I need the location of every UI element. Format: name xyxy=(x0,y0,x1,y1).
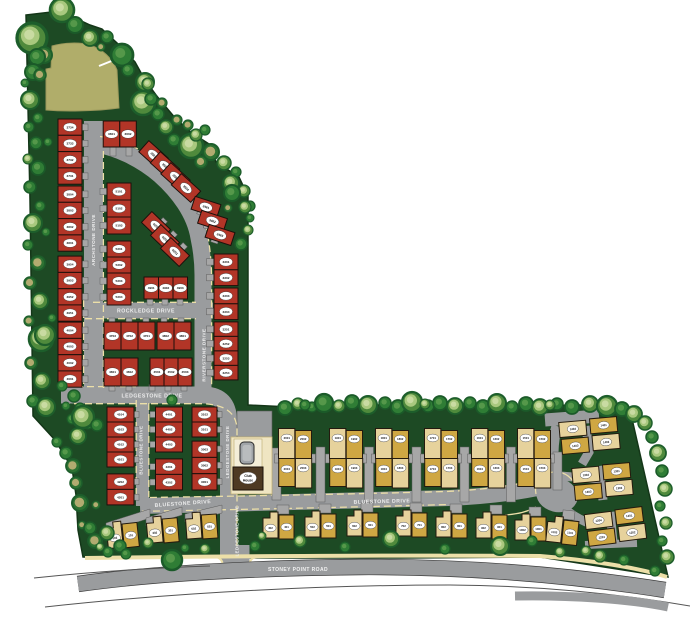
svg-text:3254: 3254 xyxy=(223,371,230,375)
svg-text:1302: 1302 xyxy=(616,486,623,491)
svg-text:1504: 1504 xyxy=(523,467,530,471)
svg-text:4802: 4802 xyxy=(162,334,169,338)
svg-text:5102: 5102 xyxy=(116,207,123,211)
svg-text:1701: 1701 xyxy=(430,436,437,440)
svg-text:3101: 3101 xyxy=(201,428,208,432)
svg-text:602: 602 xyxy=(352,524,357,528)
svg-text:1204: 1204 xyxy=(595,518,602,523)
svg-text:4703: 4703 xyxy=(109,334,116,338)
svg-text:1602: 1602 xyxy=(493,437,500,441)
svg-text:4101: 4101 xyxy=(117,458,124,462)
svg-text:1001: 1001 xyxy=(535,527,542,531)
svg-text:4701: 4701 xyxy=(143,334,150,338)
svg-text:3251: 3251 xyxy=(223,327,230,331)
svg-text:802: 802 xyxy=(441,525,446,529)
svg-text:1902: 1902 xyxy=(351,437,358,441)
svg-text:2004: 2004 xyxy=(284,467,291,471)
svg-text:3003: 3003 xyxy=(201,447,208,451)
svg-text:702: 702 xyxy=(401,524,406,528)
svg-text:4302: 4302 xyxy=(166,480,173,484)
svg-text:3802: 3802 xyxy=(67,225,74,229)
svg-text:4901: 4901 xyxy=(148,286,155,290)
svg-text:4301: 4301 xyxy=(166,465,173,469)
svg-text:402: 402 xyxy=(268,526,273,530)
svg-text:4903: 4903 xyxy=(177,286,184,290)
svg-text:3734: 3734 xyxy=(67,125,74,129)
svg-text:1503: 1503 xyxy=(539,466,546,470)
svg-text:3804: 3804 xyxy=(67,192,74,196)
svg-text:502: 502 xyxy=(191,526,196,530)
svg-text:4503: 4503 xyxy=(182,370,189,374)
svg-text:1703: 1703 xyxy=(446,466,453,470)
svg-text:701: 701 xyxy=(417,523,422,527)
svg-text:LEDGESTONE DRIVE: LEDGESTONE DRIVE xyxy=(225,426,230,479)
svg-text:5103: 5103 xyxy=(116,224,123,228)
svg-text:3253: 3253 xyxy=(223,356,230,360)
svg-text:1702: 1702 xyxy=(446,437,453,441)
svg-text:601: 601 xyxy=(368,523,373,527)
svg-text:3952: 3952 xyxy=(67,295,74,299)
svg-text:3002: 3002 xyxy=(201,464,208,468)
svg-text:1102: 1102 xyxy=(551,530,558,535)
svg-text:3602: 3602 xyxy=(125,132,132,136)
svg-text:1501: 1501 xyxy=(523,436,530,440)
svg-text:5301: 5301 xyxy=(116,247,123,251)
svg-text:501: 501 xyxy=(326,524,331,528)
svg-text:4102: 4102 xyxy=(117,443,124,447)
svg-text:101: 101 xyxy=(128,533,134,538)
svg-text:2003: 2003 xyxy=(300,466,307,470)
svg-text:1403: 1403 xyxy=(572,444,579,449)
svg-text:4801: 4801 xyxy=(179,334,186,338)
svg-text:4401: 4401 xyxy=(166,413,173,417)
svg-text:301: 301 xyxy=(168,528,174,532)
svg-text:801: 801 xyxy=(457,524,462,528)
svg-text:3951: 3951 xyxy=(67,311,74,315)
svg-text:4403: 4403 xyxy=(166,443,173,447)
svg-text:3733: 3733 xyxy=(67,142,74,146)
svg-text:3304: 3304 xyxy=(223,310,230,314)
svg-text:1203: 1203 xyxy=(598,535,605,540)
svg-text:4502: 4502 xyxy=(168,370,175,374)
svg-text:3102: 3102 xyxy=(201,413,208,417)
svg-text:1803: 1803 xyxy=(397,466,404,470)
svg-text:4001: 4001 xyxy=(67,377,74,381)
svg-text:4104: 4104 xyxy=(117,413,124,417)
svg-text:302: 302 xyxy=(152,531,158,535)
svg-text:4902: 4902 xyxy=(162,286,169,290)
svg-text:3801: 3801 xyxy=(67,241,74,245)
svg-text:1904: 1904 xyxy=(335,467,342,471)
svg-text:ROCKLEDGE DRIVE: ROCKLEDGE DRIVE xyxy=(117,309,175,315)
svg-text:901: 901 xyxy=(497,525,502,529)
svg-text:4202: 4202 xyxy=(117,480,124,484)
svg-text:3803: 3803 xyxy=(67,209,74,213)
svg-text:5303: 5303 xyxy=(116,279,123,283)
svg-text:3001: 3001 xyxy=(201,480,208,484)
svg-text:1704: 1704 xyxy=(430,467,437,471)
svg-text:ARCHSTONE DRIVE: ARCHSTONE DRIVE xyxy=(91,214,96,266)
svg-text:3303: 3303 xyxy=(223,294,230,298)
svg-text:3953: 3953 xyxy=(67,279,74,283)
svg-text:501: 501 xyxy=(207,524,212,528)
svg-text:1502: 1502 xyxy=(539,437,546,441)
svg-text:1304: 1304 xyxy=(582,473,589,478)
svg-text:1903: 1903 xyxy=(351,466,358,470)
svg-text:4201: 4201 xyxy=(117,495,124,499)
svg-text:1002: 1002 xyxy=(519,528,526,532)
svg-text:3954: 3954 xyxy=(67,262,74,266)
svg-text:1802: 1802 xyxy=(397,437,404,441)
svg-text:902: 902 xyxy=(481,526,486,530)
svg-text:1101: 1101 xyxy=(567,531,574,536)
svg-text:3732: 3732 xyxy=(67,158,74,162)
svg-text:4103: 4103 xyxy=(117,428,124,432)
svg-text:1401: 1401 xyxy=(600,423,607,428)
svg-text:1804: 1804 xyxy=(381,467,388,471)
svg-text:3252: 3252 xyxy=(223,342,230,346)
svg-text:1901: 1901 xyxy=(335,436,342,440)
svg-text:1402: 1402 xyxy=(603,440,610,445)
svg-text:3731: 3731 xyxy=(67,174,74,178)
svg-text:1303: 1303 xyxy=(585,490,592,495)
svg-text:4004: 4004 xyxy=(67,328,74,332)
svg-text:5101: 5101 xyxy=(116,190,123,194)
svg-text:1404: 1404 xyxy=(569,427,576,432)
svg-text:4501: 4501 xyxy=(154,370,161,374)
svg-text:4003: 4003 xyxy=(67,345,74,349)
svg-text:5302: 5302 xyxy=(116,263,123,267)
svg-text:4402: 4402 xyxy=(166,428,173,432)
svg-text:LEDGESTONE DRIVE: LEDGESTONE DRIVE xyxy=(235,506,240,557)
svg-text:3301: 3301 xyxy=(223,260,230,264)
svg-text:Club: Club xyxy=(244,474,252,478)
svg-text:2001: 2001 xyxy=(284,436,291,440)
svg-text:4602: 4602 xyxy=(126,370,133,374)
svg-text:1202: 1202 xyxy=(629,530,636,535)
svg-text:4002: 4002 xyxy=(67,361,74,365)
svg-text:BLUESTONE DRIVE: BLUESTONE DRIVE xyxy=(139,425,144,474)
svg-text:2002: 2002 xyxy=(300,437,307,441)
svg-text:3601: 3601 xyxy=(108,132,115,136)
svg-text:1601: 1601 xyxy=(477,436,484,440)
svg-text:1301: 1301 xyxy=(613,469,620,474)
svg-text:502: 502 xyxy=(310,525,315,529)
svg-text:1603: 1603 xyxy=(493,466,500,470)
svg-text:1801: 1801 xyxy=(381,436,388,440)
svg-text:5304: 5304 xyxy=(116,295,123,299)
svg-text:3302: 3302 xyxy=(223,276,230,280)
svg-text:401: 401 xyxy=(284,525,289,529)
svg-text:4601: 4601 xyxy=(109,370,116,374)
svg-text:RIVERSTONE DRIVE: RIVERSTONE DRIVE xyxy=(202,328,207,381)
svg-text:1604: 1604 xyxy=(477,467,484,471)
svg-text:STONEY POINT ROAD: STONEY POINT ROAD xyxy=(268,567,328,573)
svg-text:4702: 4702 xyxy=(126,334,133,338)
svg-text:House: House xyxy=(243,479,253,483)
svg-text:1201: 1201 xyxy=(626,513,633,518)
